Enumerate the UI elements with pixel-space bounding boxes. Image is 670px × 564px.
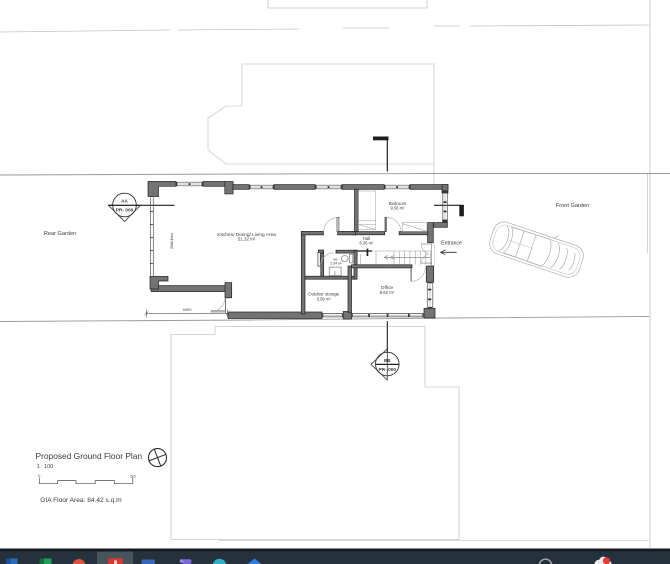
svg-text:3948.4mm: 3948.4mm	[170, 233, 174, 249]
svg-text:9.56 m²: 9.56 m²	[391, 206, 406, 211]
svg-text:2.54 m²: 2.54 m²	[330, 262, 343, 266]
svg-text:4000: 4000	[183, 307, 193, 312]
svg-text:Entrance: Entrance	[441, 241, 462, 247]
svg-text:PR- 000: PR- 000	[378, 367, 396, 373]
svg-text:AA: AA	[121, 199, 128, 204]
svg-text:GIA Floor Area: 84.42 s.q.m: GIA Floor Area: 84.42 s.q.m	[40, 497, 122, 504]
svg-text:BB: BB	[384, 358, 391, 363]
svg-text:Rear Garden: Rear Garden	[44, 231, 76, 237]
svg-text:1 : 100: 1 : 100	[37, 464, 54, 470]
svg-text:5.89 m²: 5.89 m²	[317, 296, 332, 301]
svg-text:9.62 m²: 9.62 m²	[380, 290, 395, 295]
svg-text:0: 0	[38, 474, 40, 478]
svg-text:6.36 m²: 6.36 m²	[360, 241, 375, 246]
svg-text:Proposed Ground Floor Plan: Proposed Ground Floor Plan	[36, 451, 143, 461]
svg-text:PR- 000: PR- 000	[116, 208, 134, 214]
svg-text:51.32 m²: 51.32 m²	[238, 237, 256, 242]
svg-text:5m: 5m	[130, 475, 135, 479]
svg-text:Front Garden: Front Garden	[556, 203, 589, 209]
